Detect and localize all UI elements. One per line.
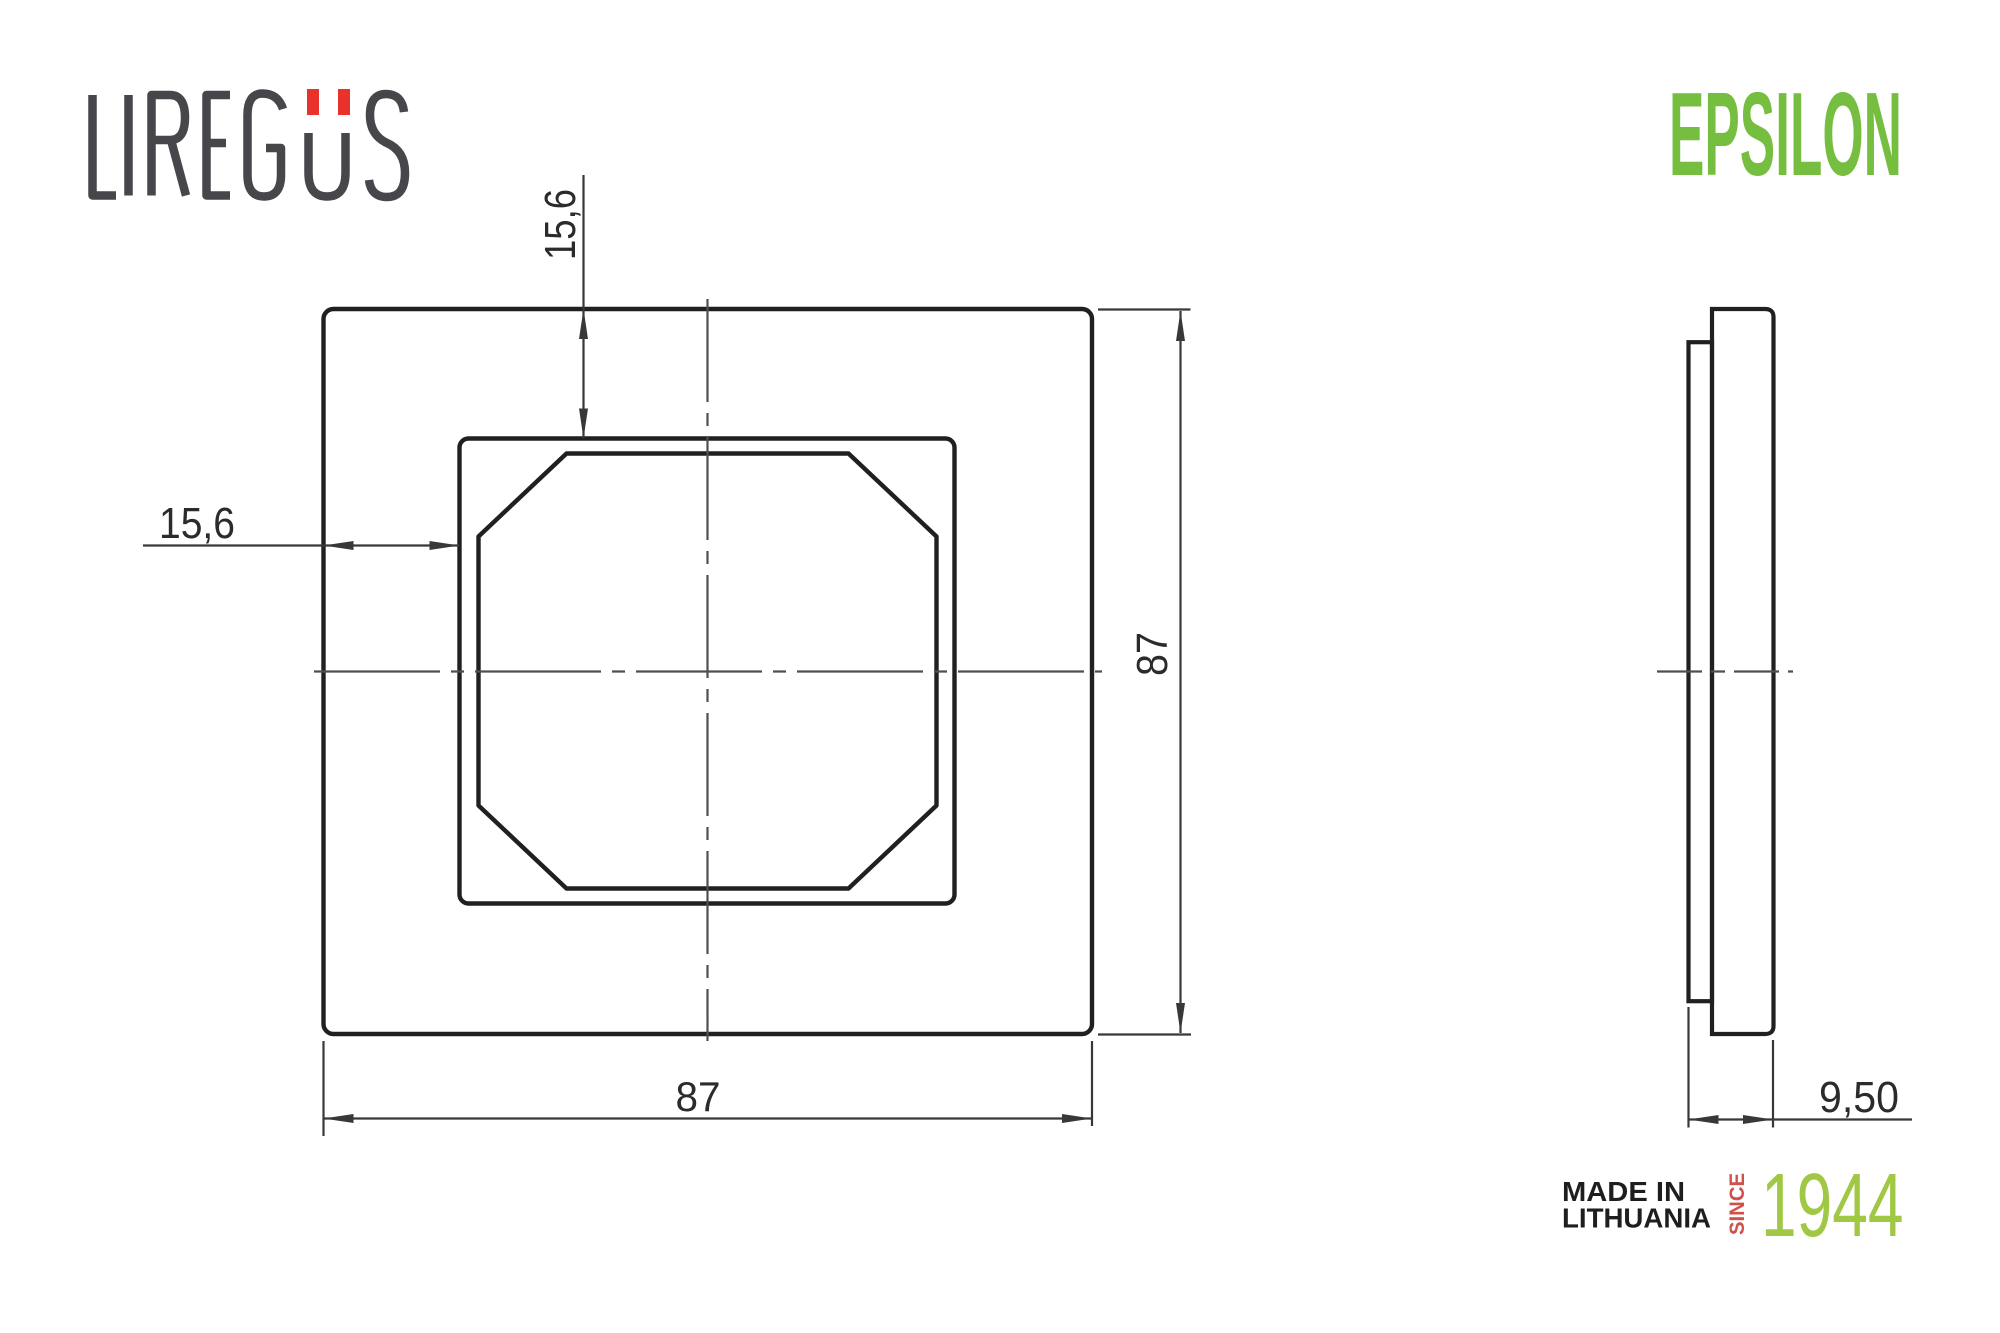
svg-text:9,50: 9,50 xyxy=(1819,1073,1899,1122)
svg-text:15,6: 15,6 xyxy=(159,499,235,548)
svg-text:15,6: 15,6 xyxy=(536,189,585,260)
svg-text:EPSILON: EPSILON xyxy=(1669,68,1902,201)
svg-text:1944: 1944 xyxy=(1761,1156,1904,1256)
svg-text:LITHUANIA: LITHUANIA xyxy=(1562,1203,1711,1234)
svg-text:87: 87 xyxy=(1128,632,1177,676)
svg-text:87: 87 xyxy=(676,1073,721,1120)
svg-text:SINCE: SINCE xyxy=(1726,1173,1749,1235)
